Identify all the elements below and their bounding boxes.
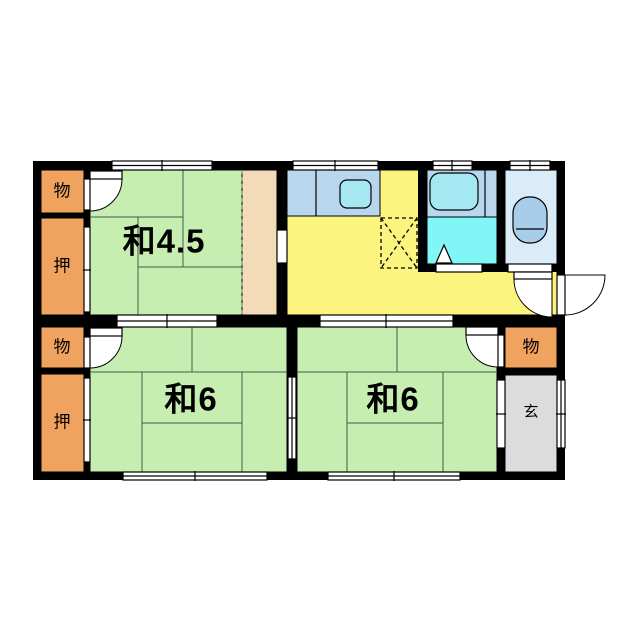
- entrance-sliding-door: [556, 380, 566, 448]
- sliding-door-between-washitsu6: [287, 377, 297, 459]
- door-back-entrance: [557, 275, 605, 315]
- window-kitchen: [293, 160, 378, 171]
- door-engawa-kitchen: [277, 230, 287, 263]
- room-genkan: [505, 375, 557, 472]
- sliding-door-closet-bottom: [83, 378, 91, 462]
- window-washitsu-6-left: [123, 471, 267, 481]
- label-closet-top-left: 押: [54, 258, 71, 275]
- window-bath: [433, 160, 472, 171]
- room-engawa-strip: [242, 170, 277, 315]
- window-washitsu-6-right: [328, 471, 460, 481]
- label-storage-right: 物: [523, 339, 540, 356]
- window-washitsu-4-5: [112, 160, 212, 171]
- bathtub: [430, 173, 478, 210]
- label-genkan: 玄: [523, 405, 538, 420]
- label-storage-bottom-left: 物: [54, 339, 71, 356]
- door-bath-opening: [436, 264, 482, 272]
- kitchen-sink: [340, 180, 371, 208]
- label-washitsu-6-right: 和6: [366, 383, 419, 416]
- sliding-door-genkan-washitsu6: [496, 380, 506, 448]
- window-toilet: [510, 160, 550, 171]
- toilet-fixture: [513, 197, 547, 243]
- floorplan-canvas: 物 押 和4.5 和6 和6 物 押 物 玄: [0, 0, 640, 640]
- label-storage-top-left: 物: [54, 183, 71, 200]
- label-washitsu-4-5: 和4.5: [123, 225, 206, 258]
- sliding-door-kitchen-washitsu6: [320, 314, 453, 328]
- label-closet-bottom-left: 押: [54, 414, 71, 431]
- sliding-door-closet-top: [83, 227, 91, 312]
- floorplan-drawing: [0, 0, 640, 640]
- label-washitsu-6-left: 和6: [164, 383, 217, 416]
- sliding-door-washitsu45-washitsu6: [117, 314, 217, 328]
